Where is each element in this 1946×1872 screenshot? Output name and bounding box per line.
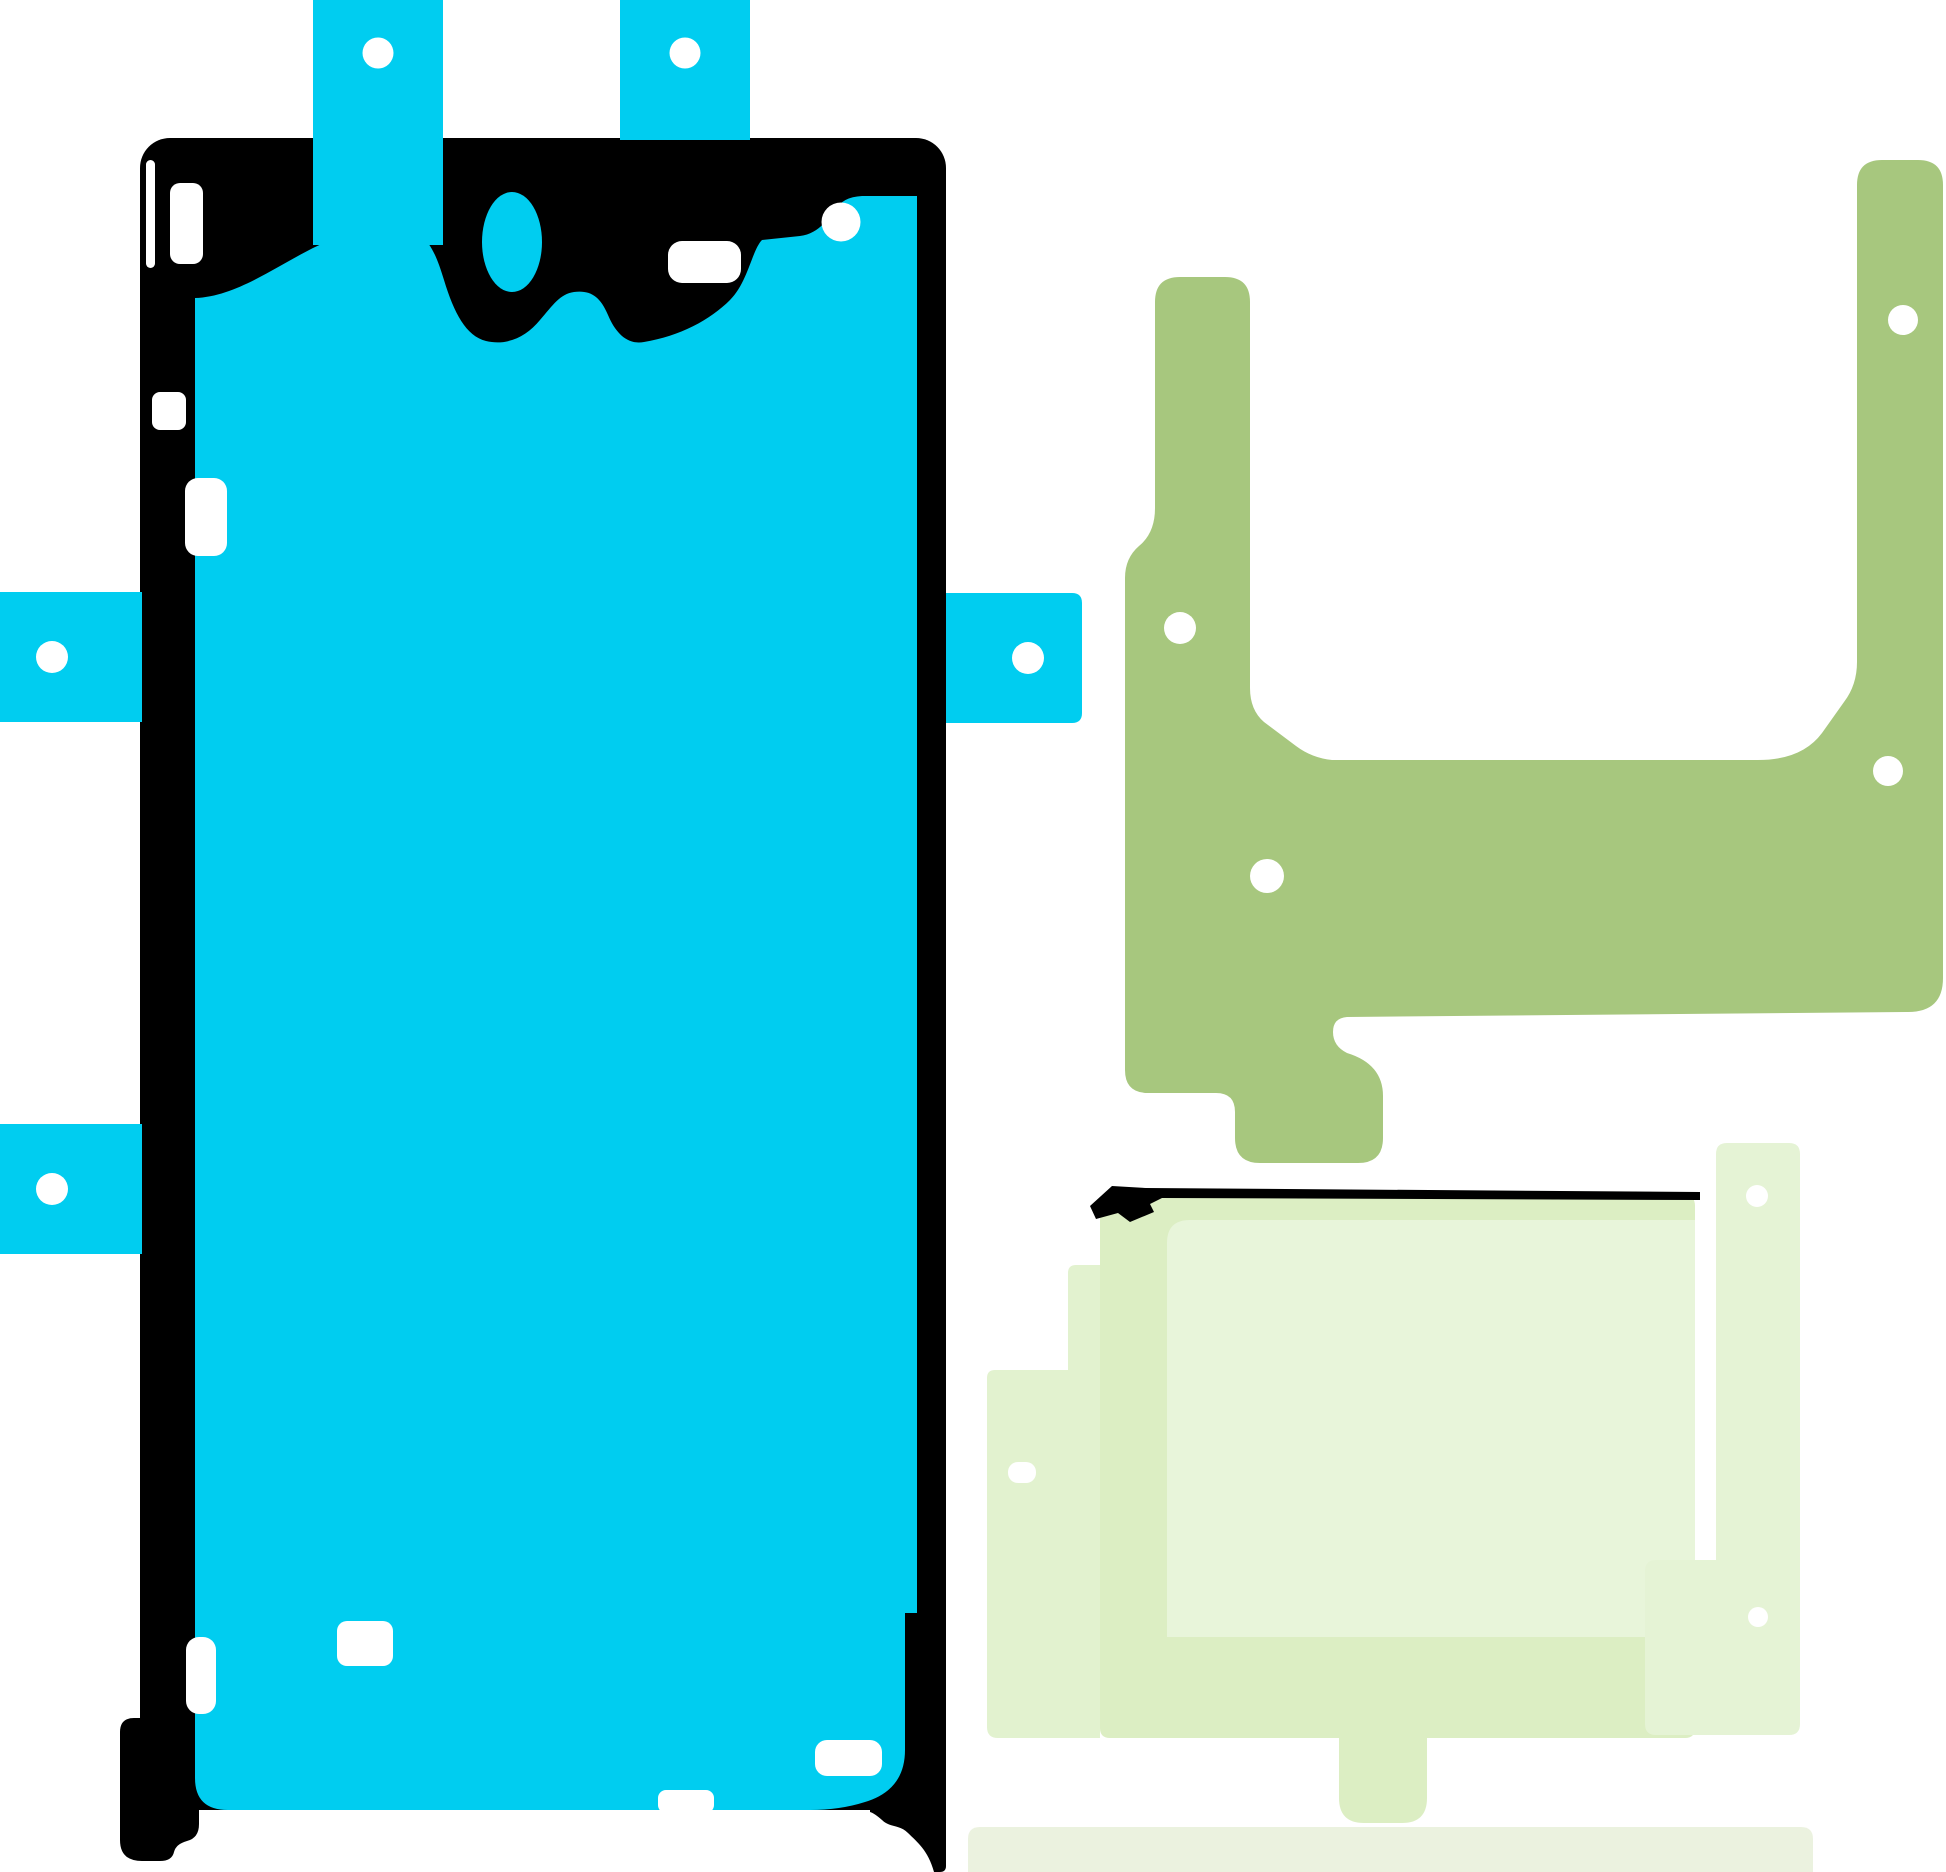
punch-hole-strip-mid (1748, 1607, 1768, 1627)
cutout-left-mid-slot (185, 478, 227, 556)
punch-hole-bracket-arm-left (1164, 612, 1196, 644)
adhesive-kit-product-image (0, 0, 1946, 1872)
display-adhesive-tab-left-upper (0, 592, 142, 722)
front-camera-cutout (482, 192, 542, 292)
punch-hole-bracket-arm-right (1888, 305, 1918, 335)
cutout-bottom-right-rect (815, 1740, 882, 1776)
cutout-sensor (668, 241, 741, 283)
punch-hole-tab-left-upper (36, 641, 68, 673)
punch-hole-sheet-left (1008, 1462, 1036, 1483)
punch-hole-bracket-body (1250, 859, 1284, 893)
adhesive-kit-canvas (0, 0, 1946, 1872)
display-adhesive-tab-top-left (313, 0, 443, 245)
punch-hole-tab-top-left (363, 38, 394, 69)
display-adhesive-tab-left-lower (0, 1124, 142, 1254)
battery-adhesive-bracket (1125, 160, 1943, 1163)
cutout-left-mid-small (152, 392, 186, 430)
punch-hole-tab-left-lower (36, 1173, 68, 1205)
punch-hole-strip-top (1746, 1185, 1768, 1207)
display-adhesive-tab-top-right (620, 0, 750, 140)
rear-adhesive-sheet-left (987, 1265, 1100, 1738)
cutout-top-left (170, 183, 203, 264)
cutout-left-edge-slot (146, 160, 155, 268)
punch-hole-bracket-right (1873, 756, 1903, 786)
cutout-bottom-left-slot (186, 1637, 216, 1714)
rear-adhesive-strip-bottom (968, 1827, 1813, 1872)
punch-hole-tab-top-right (670, 38, 701, 69)
rear-adhesive-tab-bottom (1339, 1738, 1427, 1823)
rear-adhesive-sheet-top (1167, 1220, 1695, 1637)
punch-hole-top-right (822, 203, 861, 242)
cutout-bottom-left-rect (337, 1621, 393, 1666)
display-adhesive-inner (195, 196, 917, 1810)
punch-hole-tab-right (1012, 642, 1044, 674)
cutout-bottom-center (658, 1790, 714, 1813)
